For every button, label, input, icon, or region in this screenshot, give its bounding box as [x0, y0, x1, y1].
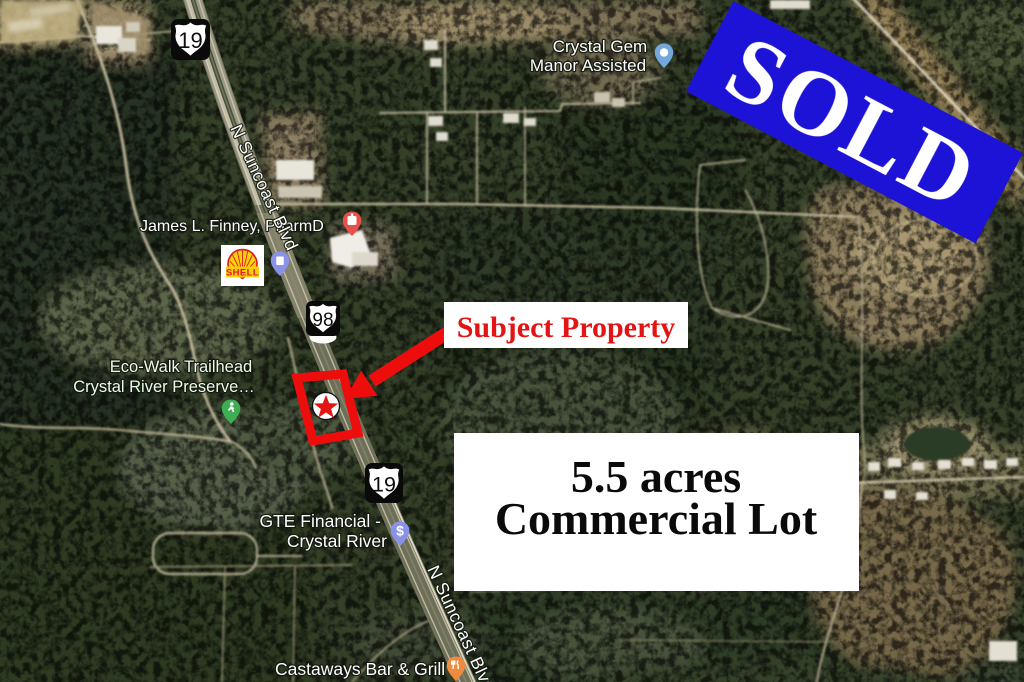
svg-text:GTE Financial -: GTE Financial -	[259, 511, 381, 531]
svg-text:Crystal Gem: Crystal Gem	[553, 37, 647, 56]
svg-text:Eco-Walk Trailhead: Eco-Walk Trailhead	[110, 358, 252, 376]
svg-text:Crystal River: Crystal River	[287, 531, 387, 551]
svg-text:Castaways Bar & Grill: Castaways Bar & Grill	[275, 659, 445, 679]
svg-text:Subject Property: Subject Property	[457, 311, 676, 344]
svg-text:Commercial Lot: Commercial Lot	[495, 493, 818, 544]
svg-text:19: 19	[372, 472, 396, 496]
svg-text:Crystal River Preserve…: Crystal River Preserve…	[73, 378, 255, 396]
svg-text:98: 98	[312, 310, 333, 331]
svg-text:$: $	[396, 523, 404, 539]
svg-text:Manor Assisted: Manor Assisted	[530, 56, 646, 75]
svg-text:19: 19	[178, 28, 202, 53]
svg-text:SHELL: SHELL	[226, 268, 259, 279]
